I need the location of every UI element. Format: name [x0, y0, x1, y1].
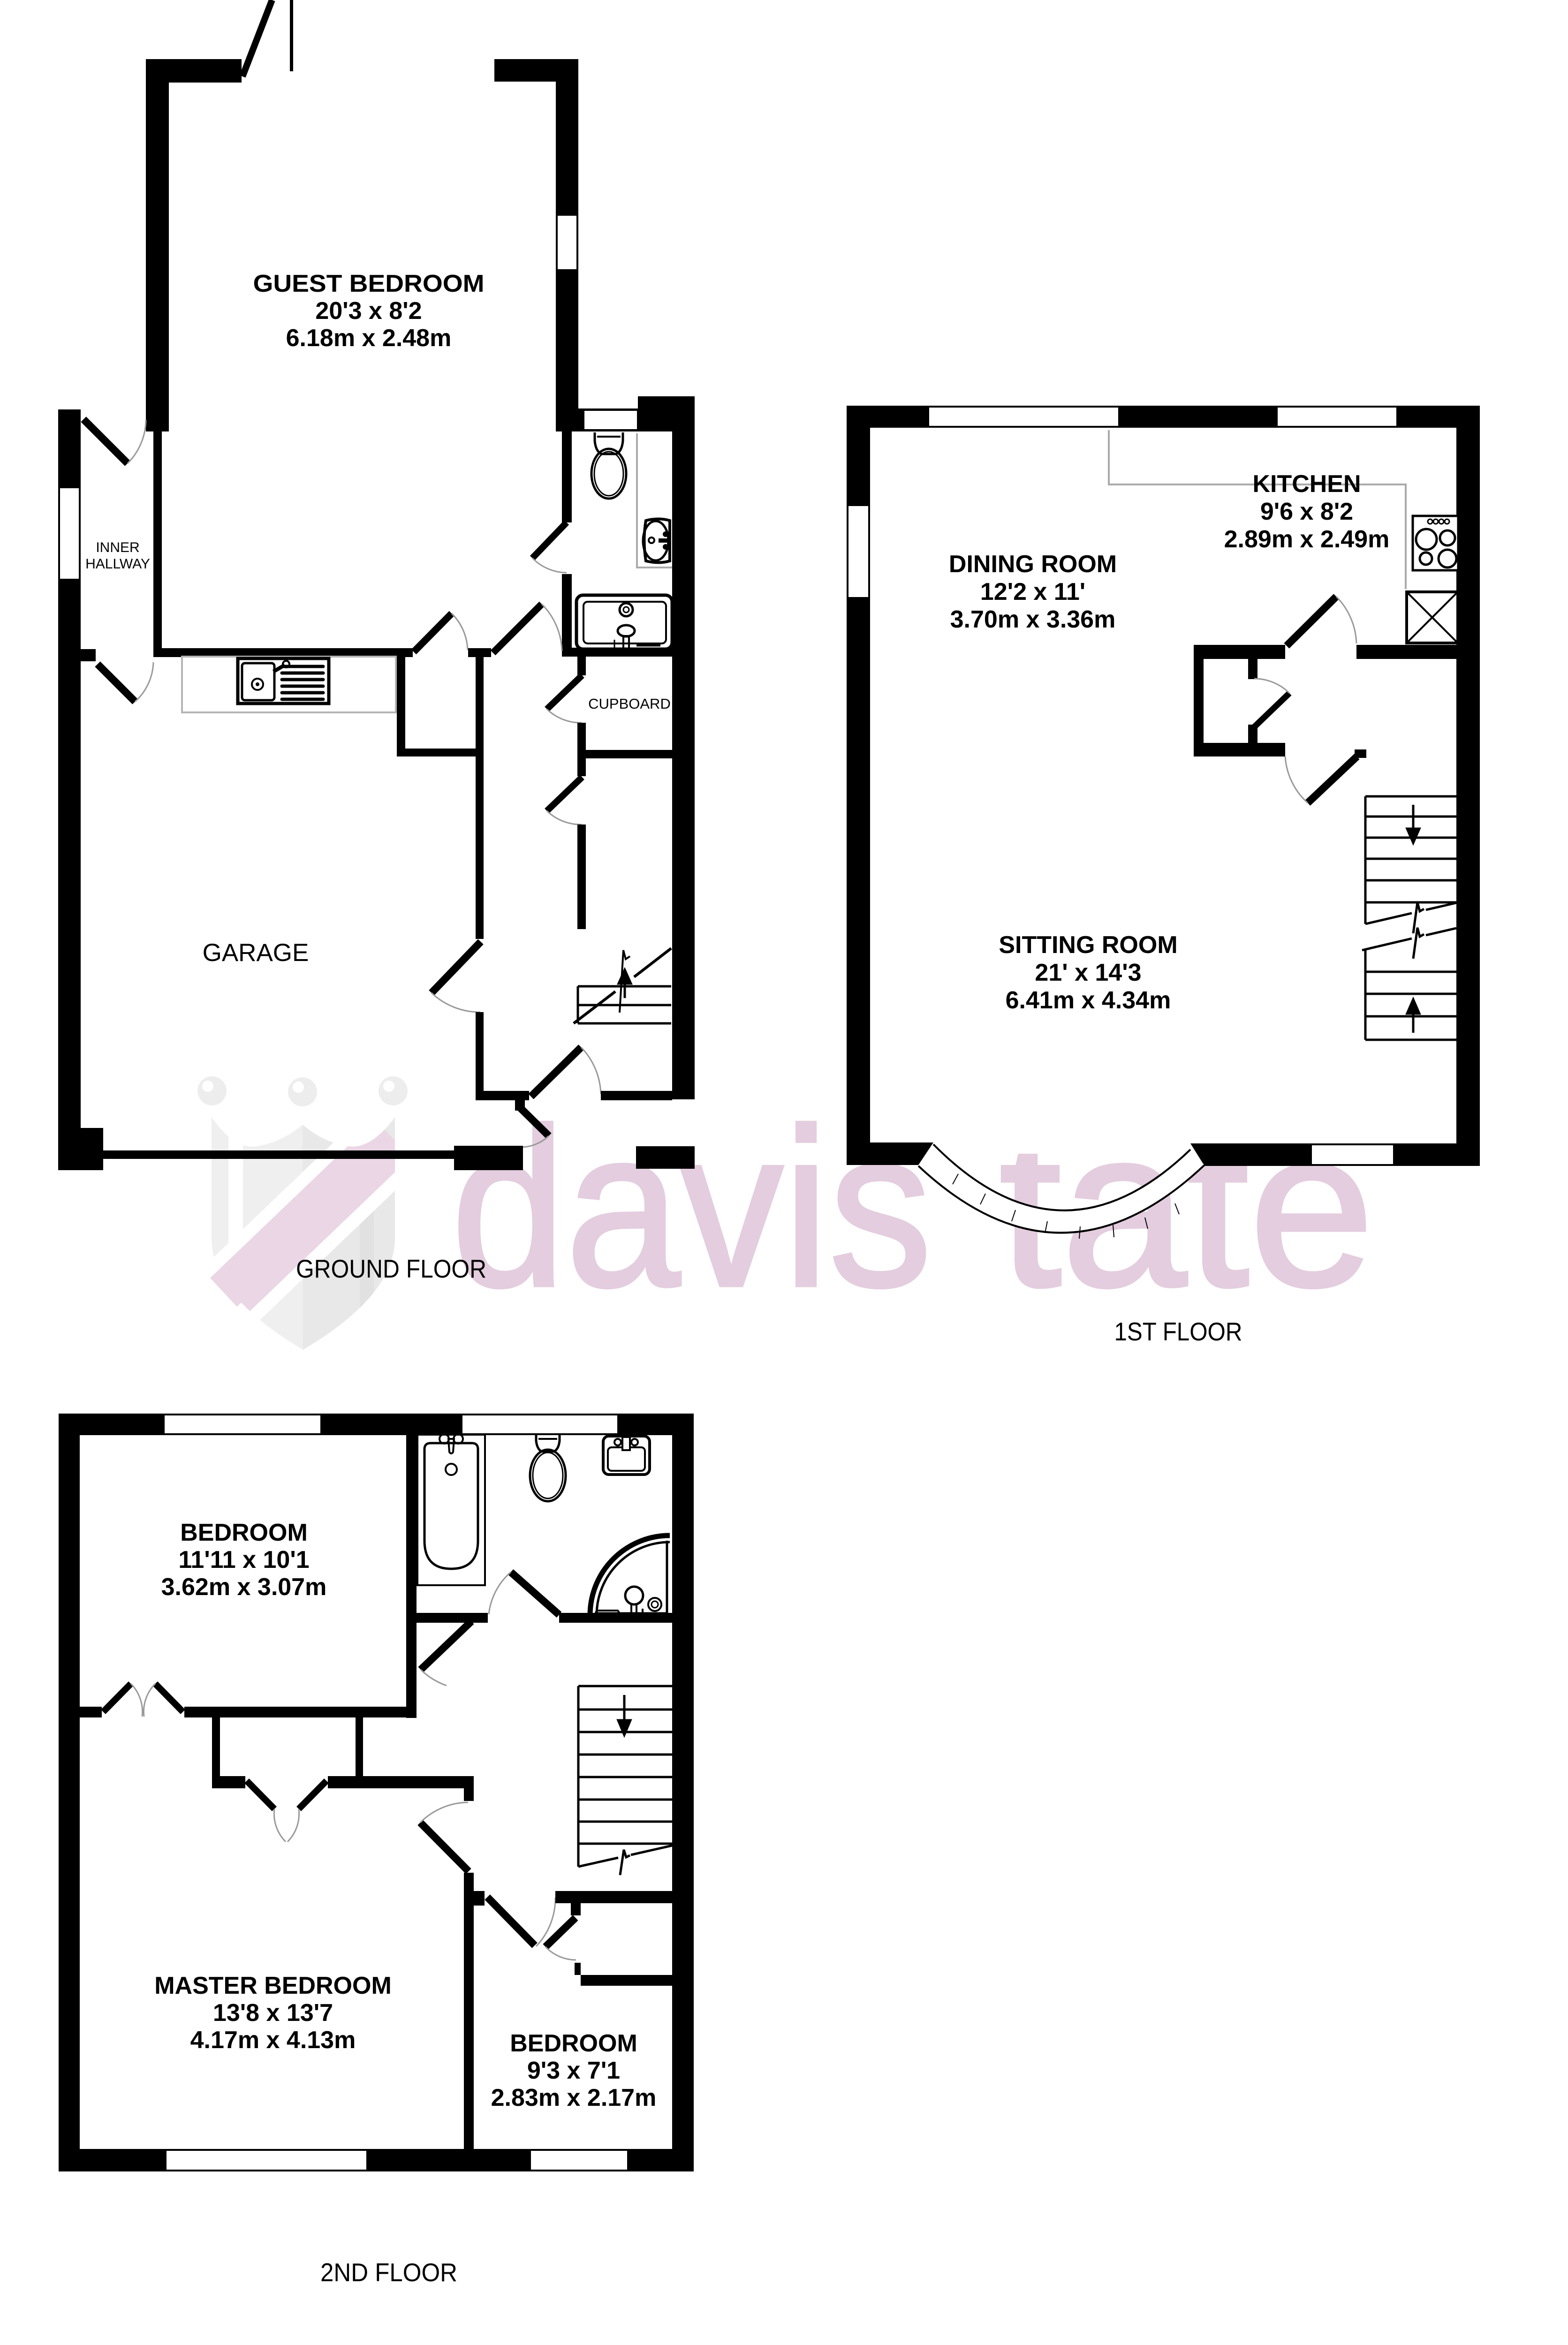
svg-text:2ND FLOOR: 2ND FLOOR [320, 2258, 457, 2287]
svg-text:1ST FLOOR: 1ST FLOOR [1114, 1317, 1242, 1346]
svg-text:DINING ROOM: DINING ROOM [949, 551, 1117, 578]
svg-text:6.41m x 4.34m: 6.41m x 4.34m [1006, 987, 1171, 1014]
svg-text:BEDROOM: BEDROOM [180, 1519, 308, 1546]
svg-text:21' x 14'3: 21' x 14'3 [1035, 959, 1141, 986]
svg-text:13'8 x 13'7: 13'8 x 13'7 [213, 1999, 333, 2027]
svg-text:3.62m x 3.07m: 3.62m x 3.07m [161, 1573, 327, 1601]
svg-text:6.18m x 2.48m: 6.18m x 2.48m [286, 325, 452, 352]
svg-text:2.89m x 2.49m: 2.89m x 2.49m [1224, 526, 1390, 553]
svg-text:20'3 x 8'2: 20'3 x 8'2 [315, 297, 422, 325]
svg-text:12'2 x 11': 12'2 x 11' [980, 578, 1085, 605]
svg-text:CUPBOARD: CUPBOARD [588, 696, 671, 712]
svg-text:SITTING ROOM: SITTING ROOM [999, 931, 1177, 959]
svg-text:GARAGE: GARAGE [203, 939, 309, 967]
svg-text:INNER: INNER [96, 540, 139, 555]
svg-text:KITCHEN: KITCHEN [1252, 470, 1361, 498]
svg-text:3.70m x 3.36m: 3.70m x 3.36m [950, 606, 1116, 633]
svg-text:GUEST BEDROOM: GUEST BEDROOM [253, 270, 485, 297]
svg-text:HALLWAY: HALLWAY [85, 556, 150, 572]
svg-text:MASTER BEDROOM: MASTER BEDROOM [154, 1972, 392, 1999]
svg-text:11'11 x 10'1: 11'11 x 10'1 [178, 1546, 309, 1573]
svg-text:4.17m x 4.13m: 4.17m x 4.13m [190, 2027, 356, 2054]
svg-text:9'6 x 8'2: 9'6 x 8'2 [1260, 498, 1353, 525]
svg-text:2.83m x 2.17m: 2.83m x 2.17m [491, 2084, 657, 2111]
svg-text:9'3 x 7'1: 9'3 x 7'1 [527, 2057, 620, 2084]
svg-text:GROUND FLOOR: GROUND FLOOR [296, 1254, 486, 1283]
svg-text:BEDROOM: BEDROOM [510, 2030, 637, 2057]
